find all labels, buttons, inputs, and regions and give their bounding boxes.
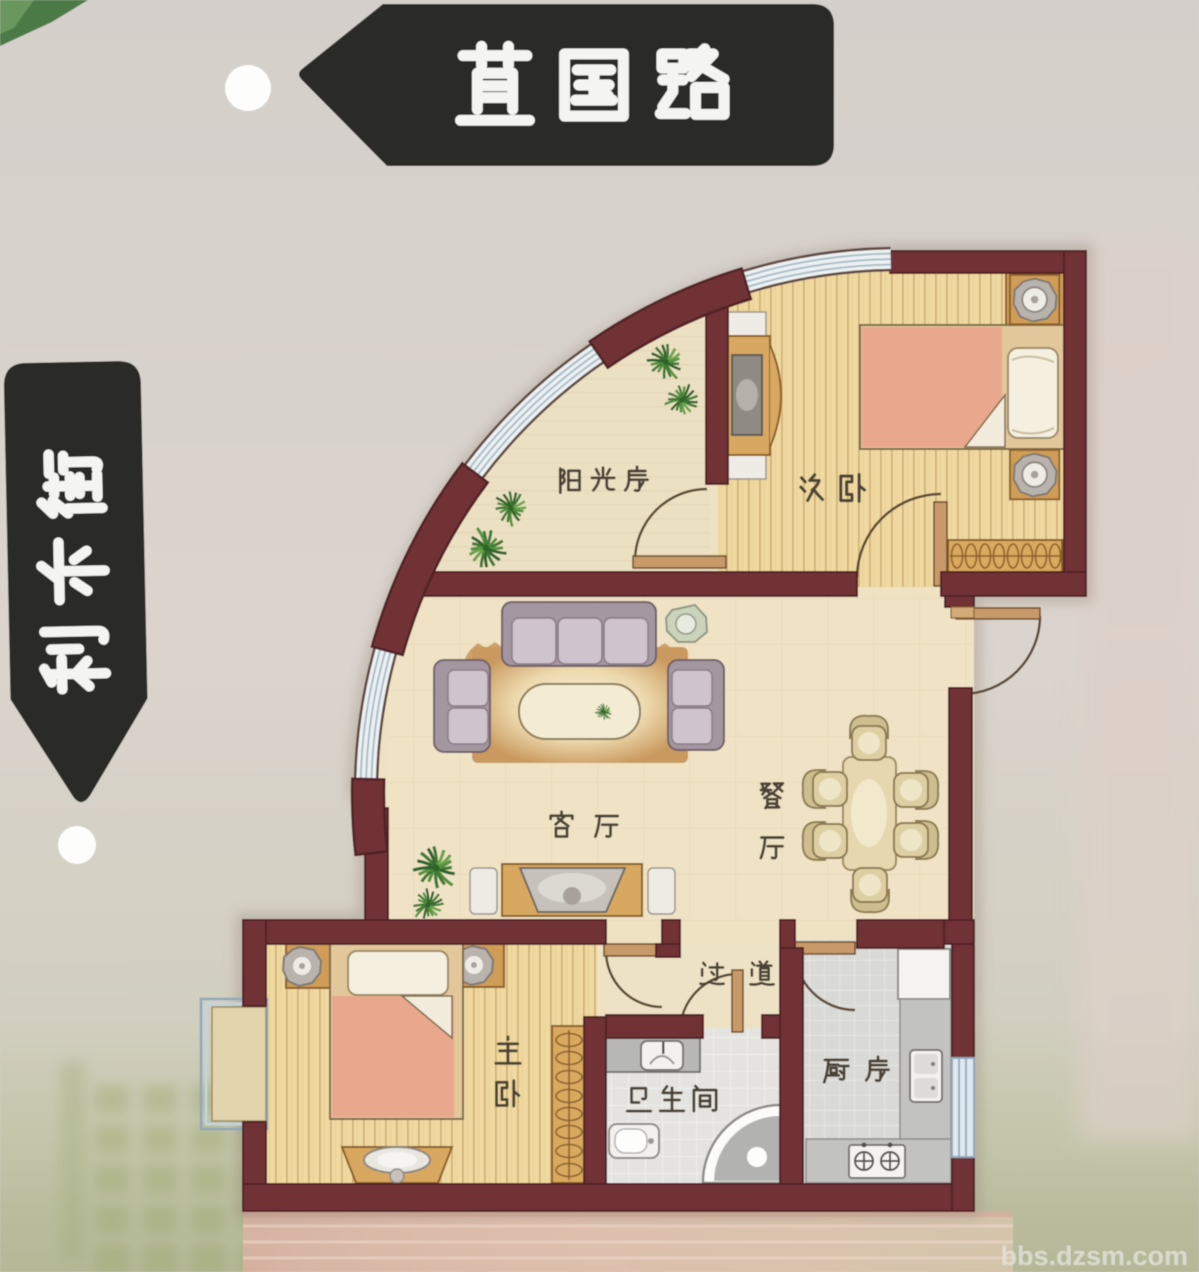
svg-text:bbs.dzsm.com: bbs.dzsm.com <box>1000 1241 1188 1271</box>
